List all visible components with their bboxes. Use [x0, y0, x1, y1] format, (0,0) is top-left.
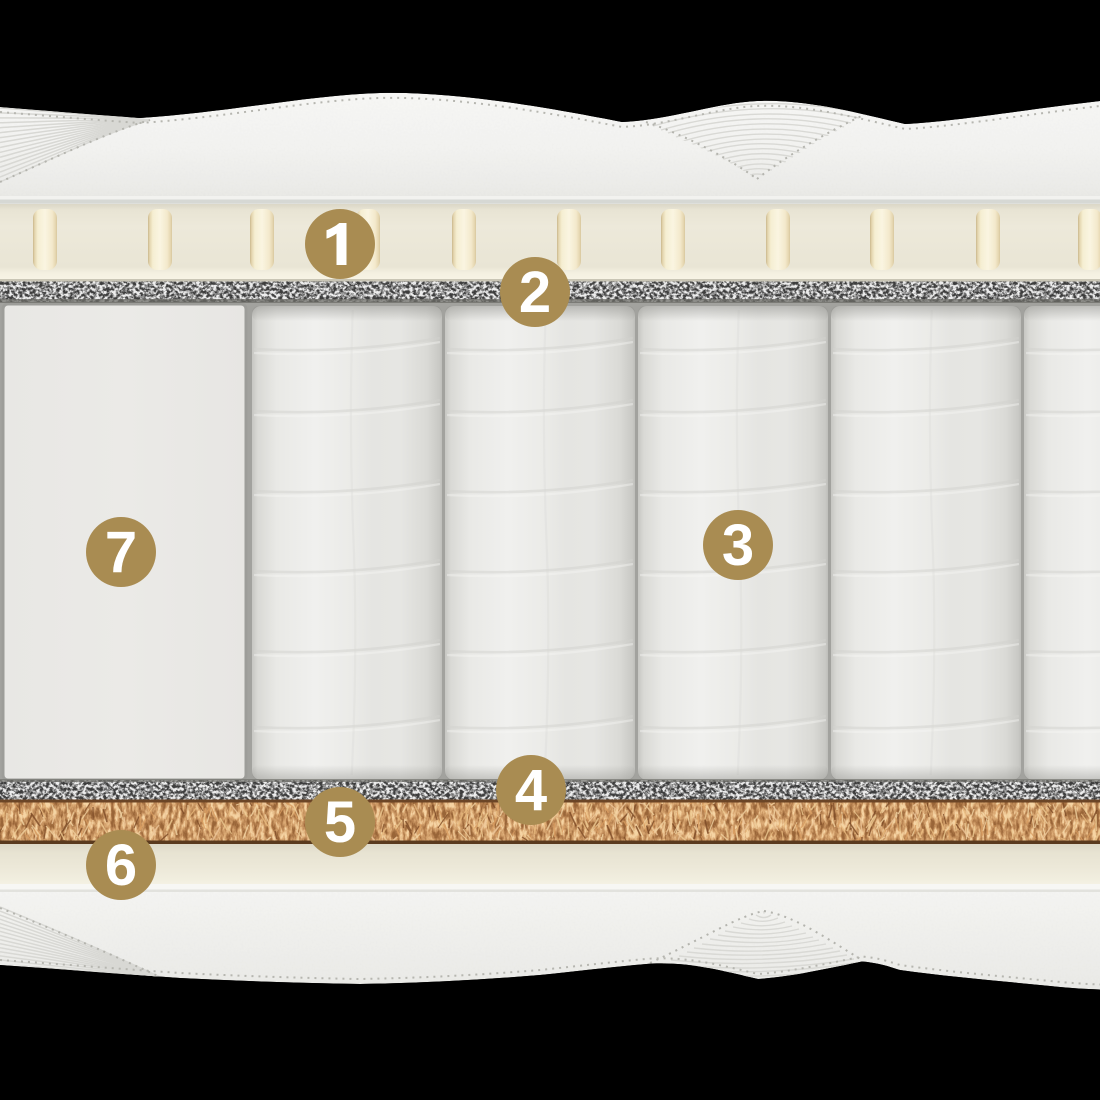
svg-text:5: 5 [324, 790, 356, 855]
svg-text:4: 4 [515, 758, 547, 823]
svg-text:7: 7 [105, 520, 137, 585]
svg-text:6: 6 [105, 833, 137, 898]
svg-text:3: 3 [722, 513, 754, 578]
svg-text:2: 2 [519, 260, 551, 325]
